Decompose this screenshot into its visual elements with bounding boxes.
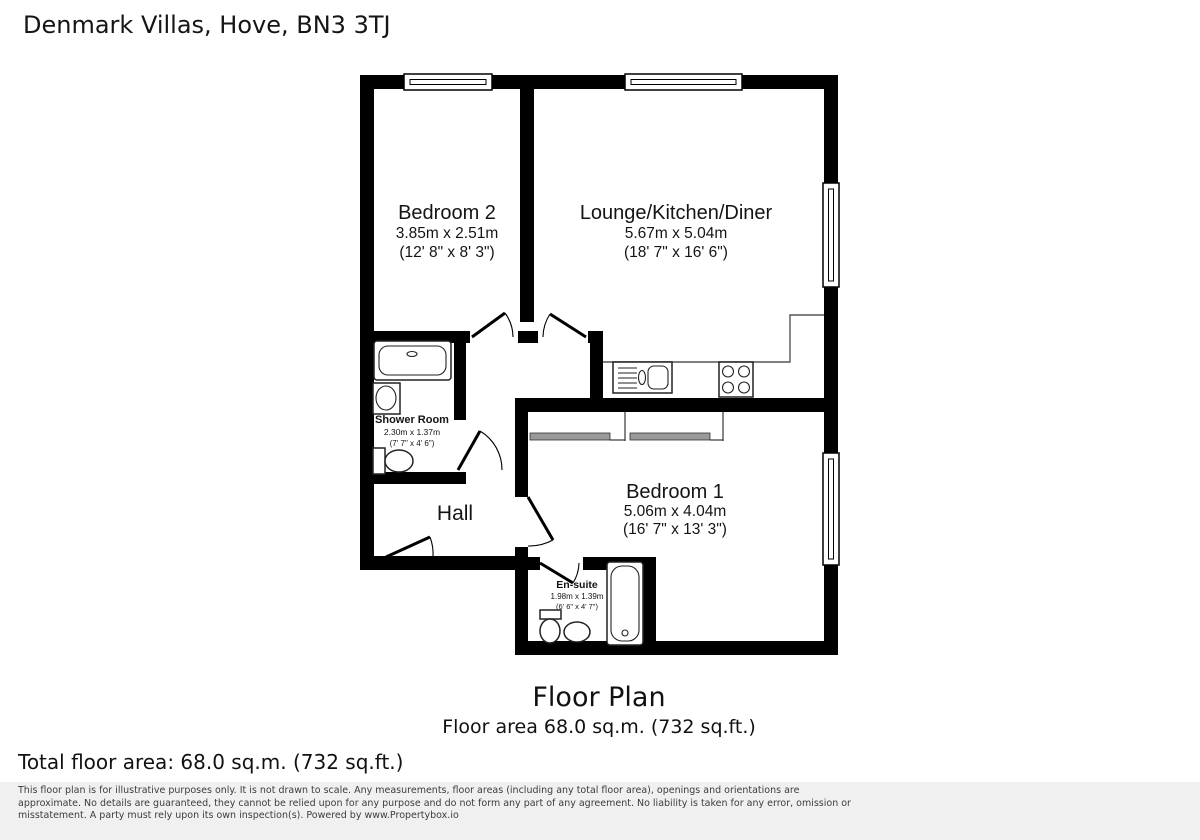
- door-shower-room-icon: [458, 431, 502, 470]
- room-dim-imperial: (18' 7" x 16' 6"): [624, 244, 728, 261]
- room-name: Lounge/Kitchen/Diner: [580, 202, 773, 224]
- total-floor-area: Total floor area: 68.0 sq.m. (732 sq.ft.…: [18, 750, 403, 774]
- room-dim-metric: 3.85m x 2.51m: [396, 225, 499, 242]
- shower-toilet-icon: [373, 448, 413, 474]
- ensuite-bath-icon: [607, 562, 643, 645]
- room-name: En-suite: [556, 579, 598, 591]
- floor-plan-title: Floor Plan: [360, 682, 838, 713]
- disclaimer: This floor plan is for illustrative purp…: [18, 785, 918, 823]
- room-dim-imperial: (12' 8" x 8' 3"): [399, 244, 494, 261]
- room-label-bedroom1: Bedroom 1 5.06m x 4.04m (16' 7" x 13' 3"…: [623, 481, 727, 538]
- room-label-hall: Hall: [437, 502, 473, 525]
- wardrobe-icon: [530, 412, 723, 441]
- room-dim-metric: 1.98m x 1.39m: [551, 592, 604, 601]
- room-label-lounge: Lounge/Kitchen/Diner 5.67m x 5.04m (18' …: [580, 202, 773, 261]
- room-dim-metric: 5.06m x 4.04m: [624, 503, 727, 520]
- floor-plan-area: Floor area 68.0 sq.m. (732 sq.ft.): [360, 716, 838, 738]
- room-dim-imperial: (16' 7" x 13' 3"): [623, 521, 727, 538]
- room-label-shower-room: Shower Room 2.30m x 1.37m (7' 7" x 4' 6"…: [375, 414, 449, 448]
- room-name: Shower Room: [375, 414, 449, 426]
- kitchen-sink-icon: [613, 362, 672, 393]
- shower-bath-icon: [374, 341, 451, 380]
- hob-icon: [719, 362, 753, 397]
- room-dim-imperial: (6' 6" x 4' 7"): [556, 602, 598, 611]
- door-bedroom1-icon: [528, 497, 553, 546]
- window-lounge-top-icon: [625, 74, 742, 90]
- room-dim-imperial: (7' 7" x 4' 6"): [390, 439, 435, 448]
- disclaimer-line-2: approximate. No details are guaranteed, …: [18, 798, 918, 811]
- plan-caption: Floor Plan Floor area 68.0 sq.m. (732 sq…: [360, 682, 838, 738]
- room-name: Hall: [437, 502, 473, 525]
- kitchen-counter: [603, 315, 824, 362]
- room-label-bedroom2: Bedroom 2 3.85m x 2.51m (12' 8" x 8' 3"): [396, 202, 499, 261]
- disclaimer-line-3: misstatement. A party must rely upon its…: [18, 810, 918, 823]
- window-bedroom2-icon: [404, 74, 492, 90]
- room-dim-metric: 2.30m x 1.37m: [384, 427, 440, 437]
- shower-sink-icon: [373, 383, 400, 414]
- ensuite-toilet-icon: [540, 610, 561, 643]
- room-label-ensuite: En-suite 1.98m x 1.39m (6' 6" x 4' 7"): [551, 579, 604, 611]
- door-lounge-icon: [543, 314, 586, 337]
- window-lounge-right-icon: [823, 183, 839, 287]
- disclaimer-line-1: This floor plan is for illustrative purp…: [18, 785, 918, 798]
- door-bedroom2-icon: [472, 313, 513, 337]
- room-name: Bedroom 2: [398, 202, 496, 224]
- ensuite-sink-icon: [564, 622, 590, 642]
- room-name: Bedroom 1: [626, 481, 724, 503]
- room-dim-metric: 5.67m x 5.04m: [625, 225, 728, 242]
- window-bedroom1-right-icon: [823, 453, 839, 565]
- door-entrance-icon: [386, 537, 433, 557]
